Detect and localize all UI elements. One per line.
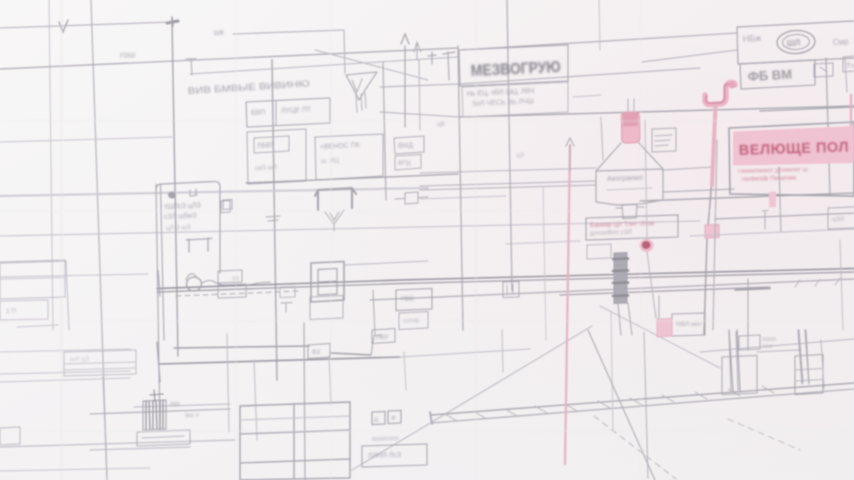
svg-text:Акограние: Акограние (607, 173, 643, 183)
svg-text:гош: гош (120, 49, 136, 60)
svg-text:цЛ З шЗ: цЛ З шЗ (166, 224, 191, 232)
svg-text:лш: лш (170, 401, 180, 408)
svg-text:ш. ЛЦ: ш. ЛЦ (321, 157, 339, 165)
svg-text:сиЗ шЛ: сиЗ шЛ (255, 164, 277, 172)
svg-text:цЗЛ: цЗЛ (832, 216, 844, 223)
svg-text:ЛВУ: ЛВУ (376, 334, 389, 341)
svg-text:шЛ цЗ: шЛ цЗ (70, 356, 89, 363)
svg-text:ФБ ВМ: ФБ ВМ (747, 67, 792, 84)
svg-text:сЗЛ шбмЗ: сЗЛ шбмЗ (164, 212, 197, 221)
svg-text:ШЛ: ШЛ (787, 38, 801, 48)
svg-text:шк: шк (214, 27, 225, 37)
svg-text:ПВЕ: ПВЕ (401, 296, 415, 303)
svg-text:Смр: Смр (833, 37, 850, 47)
svg-text:лллл: лллл (762, 337, 777, 343)
svg-text:длconfirm сЗЛ: длconfirm сЗЛ (590, 229, 632, 237)
svg-text:ллл: ллл (762, 344, 773, 350)
svg-text:ЛУЦЕ ПТ: ЛУЦЕ ПТ (281, 107, 312, 115)
svg-text:БВП: БВП (251, 109, 266, 117)
svg-text:НВЛ мет: НВЛ мет (676, 321, 702, 328)
svg-text:1 П: 1 П (6, 308, 16, 315)
svg-text:ЛЛНЛ ЛсЗ: ЛЛНЛ ЛсЗ (368, 452, 401, 460)
svg-text:ВЗ: ВЗ (312, 349, 320, 356)
svg-text:Ф: Ф (391, 416, 396, 422)
svg-text:цЗ: цЗ (516, 152, 524, 159)
svg-text:плллтллл: плллтллл (372, 436, 400, 443)
svg-text:аш з: аш з (185, 412, 199, 419)
svg-text:Д: Д (374, 417, 378, 423)
svg-text:Тч: Тч (846, 63, 854, 70)
svg-text:ВПд: ВПд (398, 159, 411, 167)
svg-text:ВМД: ВМД (398, 142, 414, 150)
svg-text:гюлbestår Печатник: гюлbestår Печатник (742, 175, 797, 183)
svg-text:НБж: НБж (743, 33, 762, 44)
svg-text:ЛБВТ: ЛБВТ (257, 142, 276, 150)
